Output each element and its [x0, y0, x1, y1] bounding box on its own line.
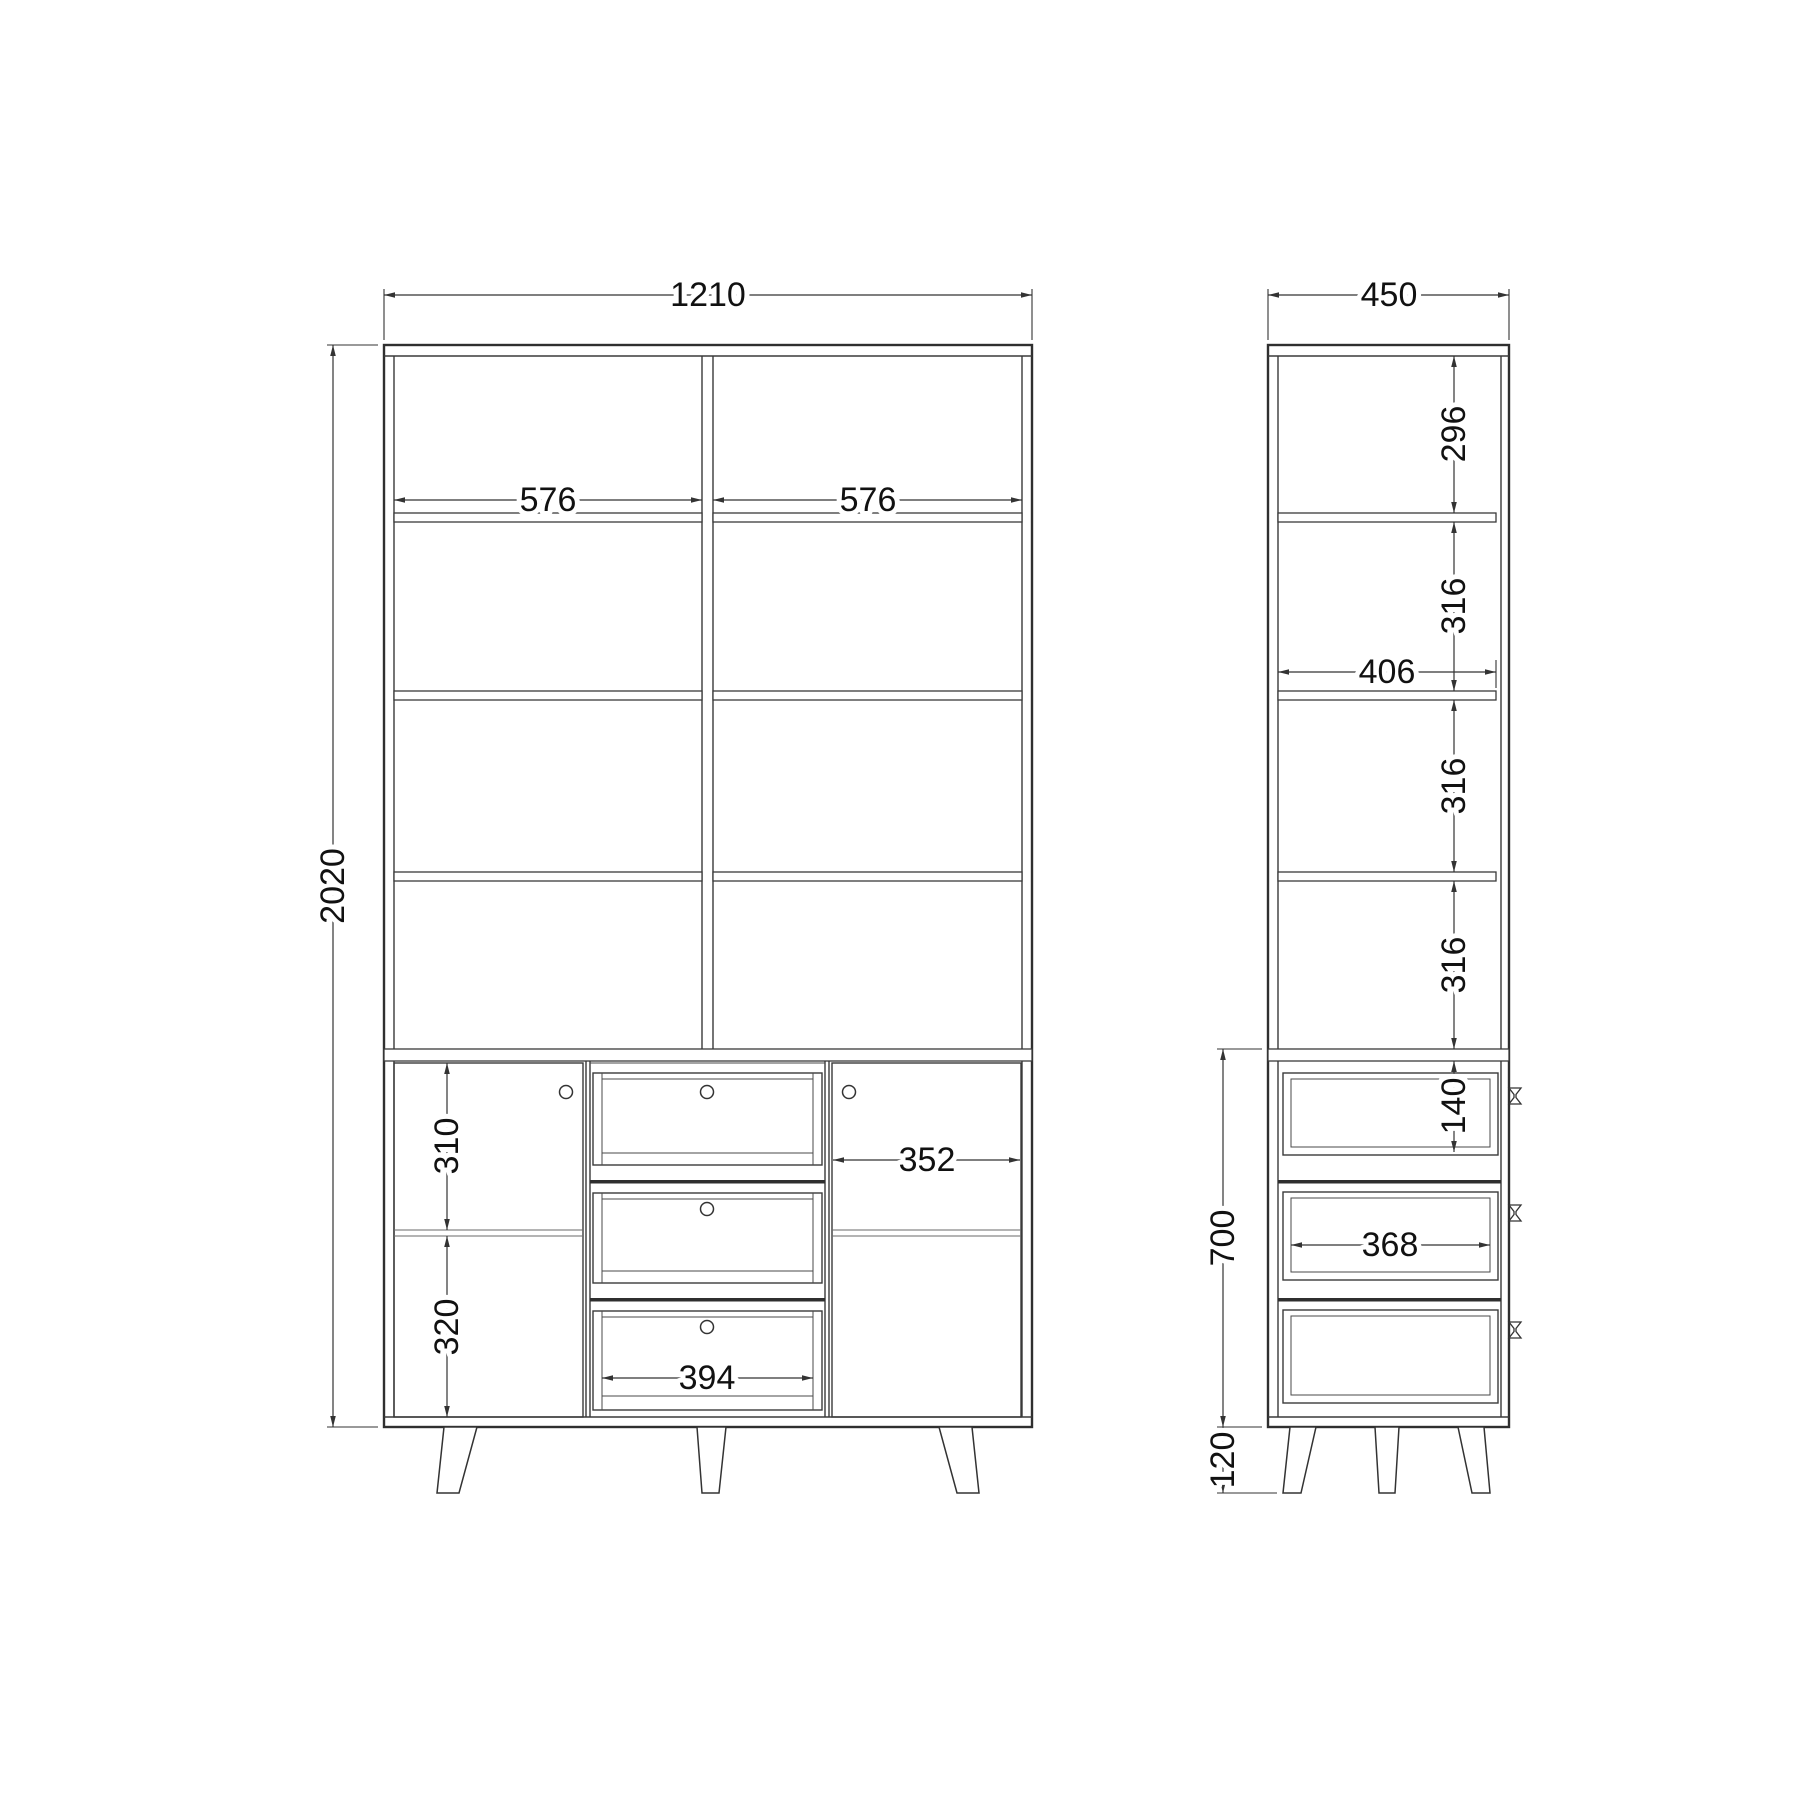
mid-divider-band	[384, 1049, 1032, 1061]
drawer-handle-icon	[1509, 1205, 1521, 1221]
left-door-knob	[560, 1086, 573, 1099]
shelf-band	[713, 691, 1022, 700]
dim-drawer-depth: 368	[1291, 1226, 1490, 1264]
dim-door-upper-cell-label: 310	[428, 1118, 466, 1175]
drawer-handle-icon	[1509, 1088, 1521, 1104]
dim-left-opening-label: 576	[520, 481, 577, 519]
drawer-handle-icon	[1509, 1322, 1521, 1338]
side-front-leg	[1458, 1427, 1490, 1493]
furniture-technical-drawing: 1210 2020 576 576 310 320	[0, 0, 1799, 1800]
side-middle-leg	[1375, 1427, 1399, 1493]
side-back-leg	[1283, 1427, 1316, 1493]
side-view: 450 296 316 316 316 140 406	[1204, 276, 1521, 1493]
dim-second-cell: 316	[1435, 522, 1473, 691]
front-view: 1210 2020 576 576 310 320	[314, 276, 1032, 1493]
drawer-box	[1283, 1310, 1498, 1403]
dim-top-drawer: 140	[1435, 1061, 1473, 1152]
dim-top-drawer-label: 140	[1435, 1078, 1473, 1135]
dim-fourth-cell-label: 316	[1435, 937, 1473, 994]
front-right-leg	[939, 1427, 979, 1493]
mid-divider-band	[1268, 1049, 1509, 1061]
shelf-band	[394, 872, 702, 881]
dim-top-cell: 296	[1435, 356, 1473, 513]
dim-leg-height-label: 120	[1204, 1432, 1242, 1489]
dim-overall-height: 2020	[314, 345, 378, 1427]
dim-drawer-opening-label: 394	[679, 1359, 736, 1397]
dim-drawer-opening: 394	[602, 1359, 813, 1397]
drawer-knob	[701, 1203, 714, 1216]
front-left-leg	[437, 1427, 477, 1493]
dim-right-opening-label: 576	[840, 481, 897, 519]
dim-top-cell-label: 296	[1435, 406, 1473, 463]
drawer-separator	[1278, 1180, 1501, 1184]
drawer-knob	[701, 1321, 714, 1334]
dim-door-lower-cell-label: 320	[428, 1299, 466, 1356]
drawer-knob	[701, 1086, 714, 1099]
front-cabinet-outline	[384, 345, 1032, 1427]
dim-overall-depth-label: 450	[1361, 276, 1418, 314]
shelf-band	[713, 872, 1022, 881]
dim-overall-depth: 450	[1268, 276, 1509, 340]
drawer-2-front	[593, 1193, 822, 1283]
shelf-band	[1278, 872, 1496, 881]
front-middle-leg	[697, 1427, 726, 1493]
dim-base-section: 700	[1204, 1049, 1262, 1427]
side-cabinet-outline	[1268, 345, 1509, 1427]
left-door	[394, 1063, 583, 1417]
drawer-separator	[590, 1180, 825, 1184]
dim-shelf-depth-label: 406	[1359, 653, 1416, 691]
drawer-1-front	[593, 1073, 822, 1165]
dim-base-section-label: 700	[1204, 1210, 1242, 1267]
right-door-knob	[843, 1086, 856, 1099]
dim-door-upper-cell: 310	[428, 1063, 466, 1230]
shelf-band	[394, 691, 702, 700]
dim-overall-width-label: 1210	[670, 276, 746, 314]
dim-leg-height: 120	[1204, 1427, 1277, 1493]
dim-shelf-depth: 406	[1278, 653, 1496, 691]
shelf-band	[1278, 691, 1496, 700]
dim-right-door-width: 352	[833, 1141, 1020, 1179]
drawer-box-inner	[1291, 1316, 1490, 1395]
dim-third-cell: 316	[1435, 700, 1473, 872]
dim-fourth-cell: 316	[1435, 881, 1473, 1049]
drawer-3-side	[1283, 1310, 1498, 1403]
technical-drawing-page: 1210 2020 576 576 310 320	[0, 0, 1799, 1800]
shelf-band	[1278, 513, 1496, 522]
dim-second-cell-label: 316	[1435, 578, 1473, 635]
dim-door-lower-cell: 320	[428, 1236, 466, 1417]
dim-right-door-width-label: 352	[899, 1141, 956, 1179]
dim-drawer-depth-label: 368	[1362, 1226, 1419, 1264]
dim-overall-width: 1210	[384, 276, 1032, 340]
drawer-separator	[590, 1298, 825, 1302]
drawer-separator	[1278, 1298, 1501, 1302]
dim-overall-height-label: 2020	[314, 848, 352, 924]
dim-third-cell-label: 316	[1435, 758, 1473, 815]
right-door	[832, 1063, 1021, 1417]
